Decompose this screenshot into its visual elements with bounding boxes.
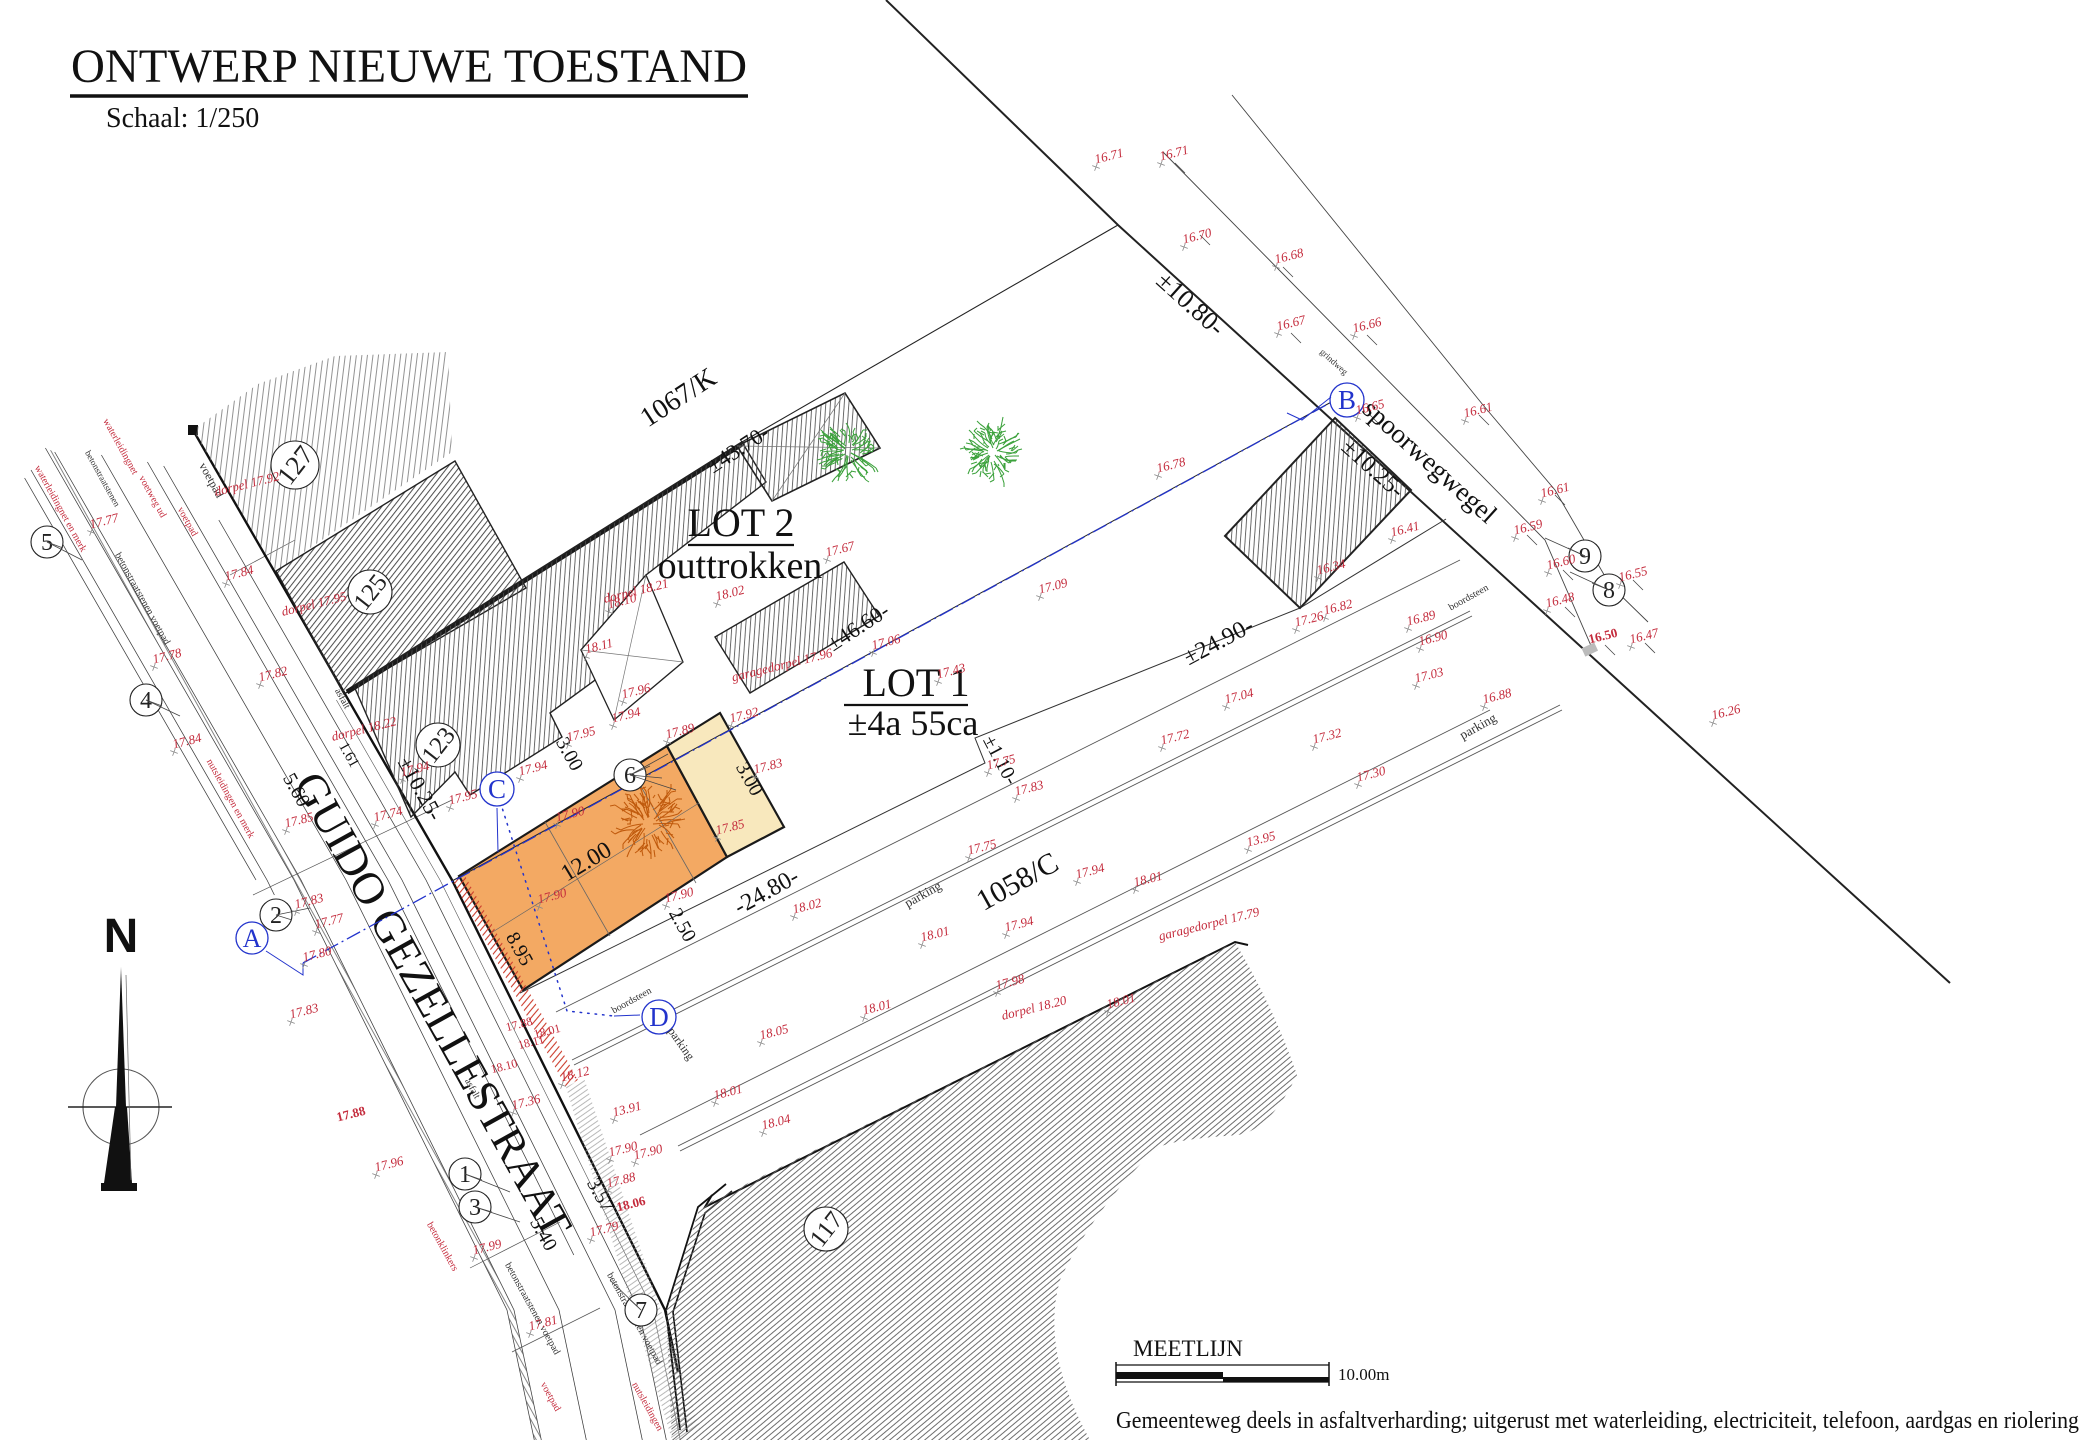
svg-text:7: 7 <box>635 1298 647 1324</box>
svg-text:8: 8 <box>1603 578 1615 604</box>
svg-text:MEETLIJN: MEETLIJN <box>1133 1336 1243 1361</box>
svg-text:ONTWERP NIEUWE TOESTAND: ONTWERP NIEUWE TOESTAND <box>71 40 747 93</box>
svg-text:Gemeenteweg deels in asfaltver: Gemeenteweg deels in asfaltverharding; u… <box>1116 1408 2079 1434</box>
svg-text:C: C <box>488 774 506 804</box>
svg-text:D: D <box>649 1002 669 1032</box>
svg-text:B: B <box>1338 385 1356 415</box>
svg-text:10.00m: 10.00m <box>1338 1365 1389 1384</box>
svg-text:9: 9 <box>1579 544 1591 570</box>
svg-text:Schaal: 1/250: Schaal: 1/250 <box>106 103 259 134</box>
svg-text:LOT 2: LOT 2 <box>687 500 794 545</box>
svg-text:N: N <box>104 910 139 963</box>
svg-text:±4a 55ca: ±4a 55ca <box>848 703 979 743</box>
svg-text:A: A <box>243 924 262 953</box>
svg-text:outtrokken: outtrokken <box>658 545 823 587</box>
